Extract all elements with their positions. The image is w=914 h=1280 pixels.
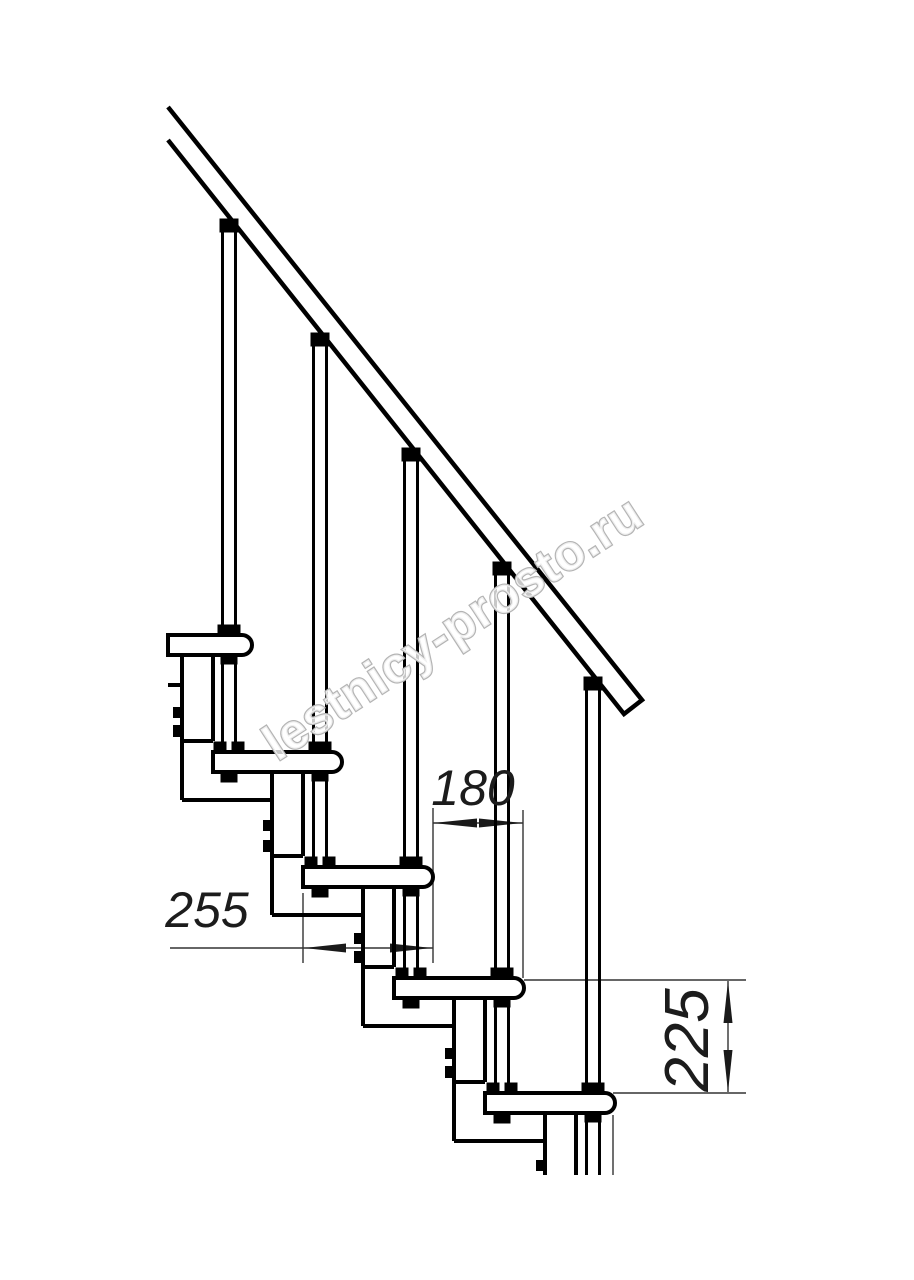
dimension-labels: 180 255 225 bbox=[164, 760, 722, 1093]
tread-4 bbox=[394, 978, 524, 998]
module-clip bbox=[354, 933, 363, 944]
baluster-1 bbox=[219, 220, 239, 635]
drawing-svg: 180 255 225 lestnicy-prosto.ru bbox=[0, 0, 914, 1280]
dim-label-255: 255 bbox=[164, 882, 249, 938]
module-clip bbox=[173, 725, 182, 737]
dim-label-180: 180 bbox=[431, 760, 515, 816]
dim-label-225: 225 bbox=[653, 988, 722, 1093]
baluster-5 bbox=[583, 678, 603, 1093]
arrow-180-left bbox=[433, 819, 477, 828]
module-clip bbox=[445, 1048, 454, 1059]
module-clip bbox=[263, 820, 272, 831]
baluster-top-collar bbox=[312, 334, 328, 345]
module-clip bbox=[263, 840, 272, 852]
module-5-clipped bbox=[536, 1113, 576, 1175]
module-clip bbox=[445, 1066, 454, 1078]
baluster-top-collar bbox=[403, 449, 419, 460]
baluster-top-collar bbox=[585, 678, 601, 689]
tread-3 bbox=[303, 867, 433, 887]
arrow-255-right bbox=[390, 944, 432, 953]
arrow-225-down bbox=[724, 1050, 733, 1092]
baluster-top-collar bbox=[221, 220, 237, 231]
module-clip bbox=[536, 1160, 545, 1171]
staircase-technical-drawing: 180 255 225 lestnicy-prosto.ru bbox=[0, 0, 914, 1280]
module-clip bbox=[173, 707, 182, 718]
arrow-255-left bbox=[304, 944, 346, 953]
tread-5 bbox=[485, 1093, 615, 1113]
tread-1 bbox=[168, 635, 252, 655]
module-clip bbox=[354, 951, 363, 963]
arrow-180-right bbox=[479, 819, 523, 828]
pipe-5-clipped bbox=[586, 1113, 600, 1175]
arrow-225-up bbox=[724, 981, 733, 1023]
